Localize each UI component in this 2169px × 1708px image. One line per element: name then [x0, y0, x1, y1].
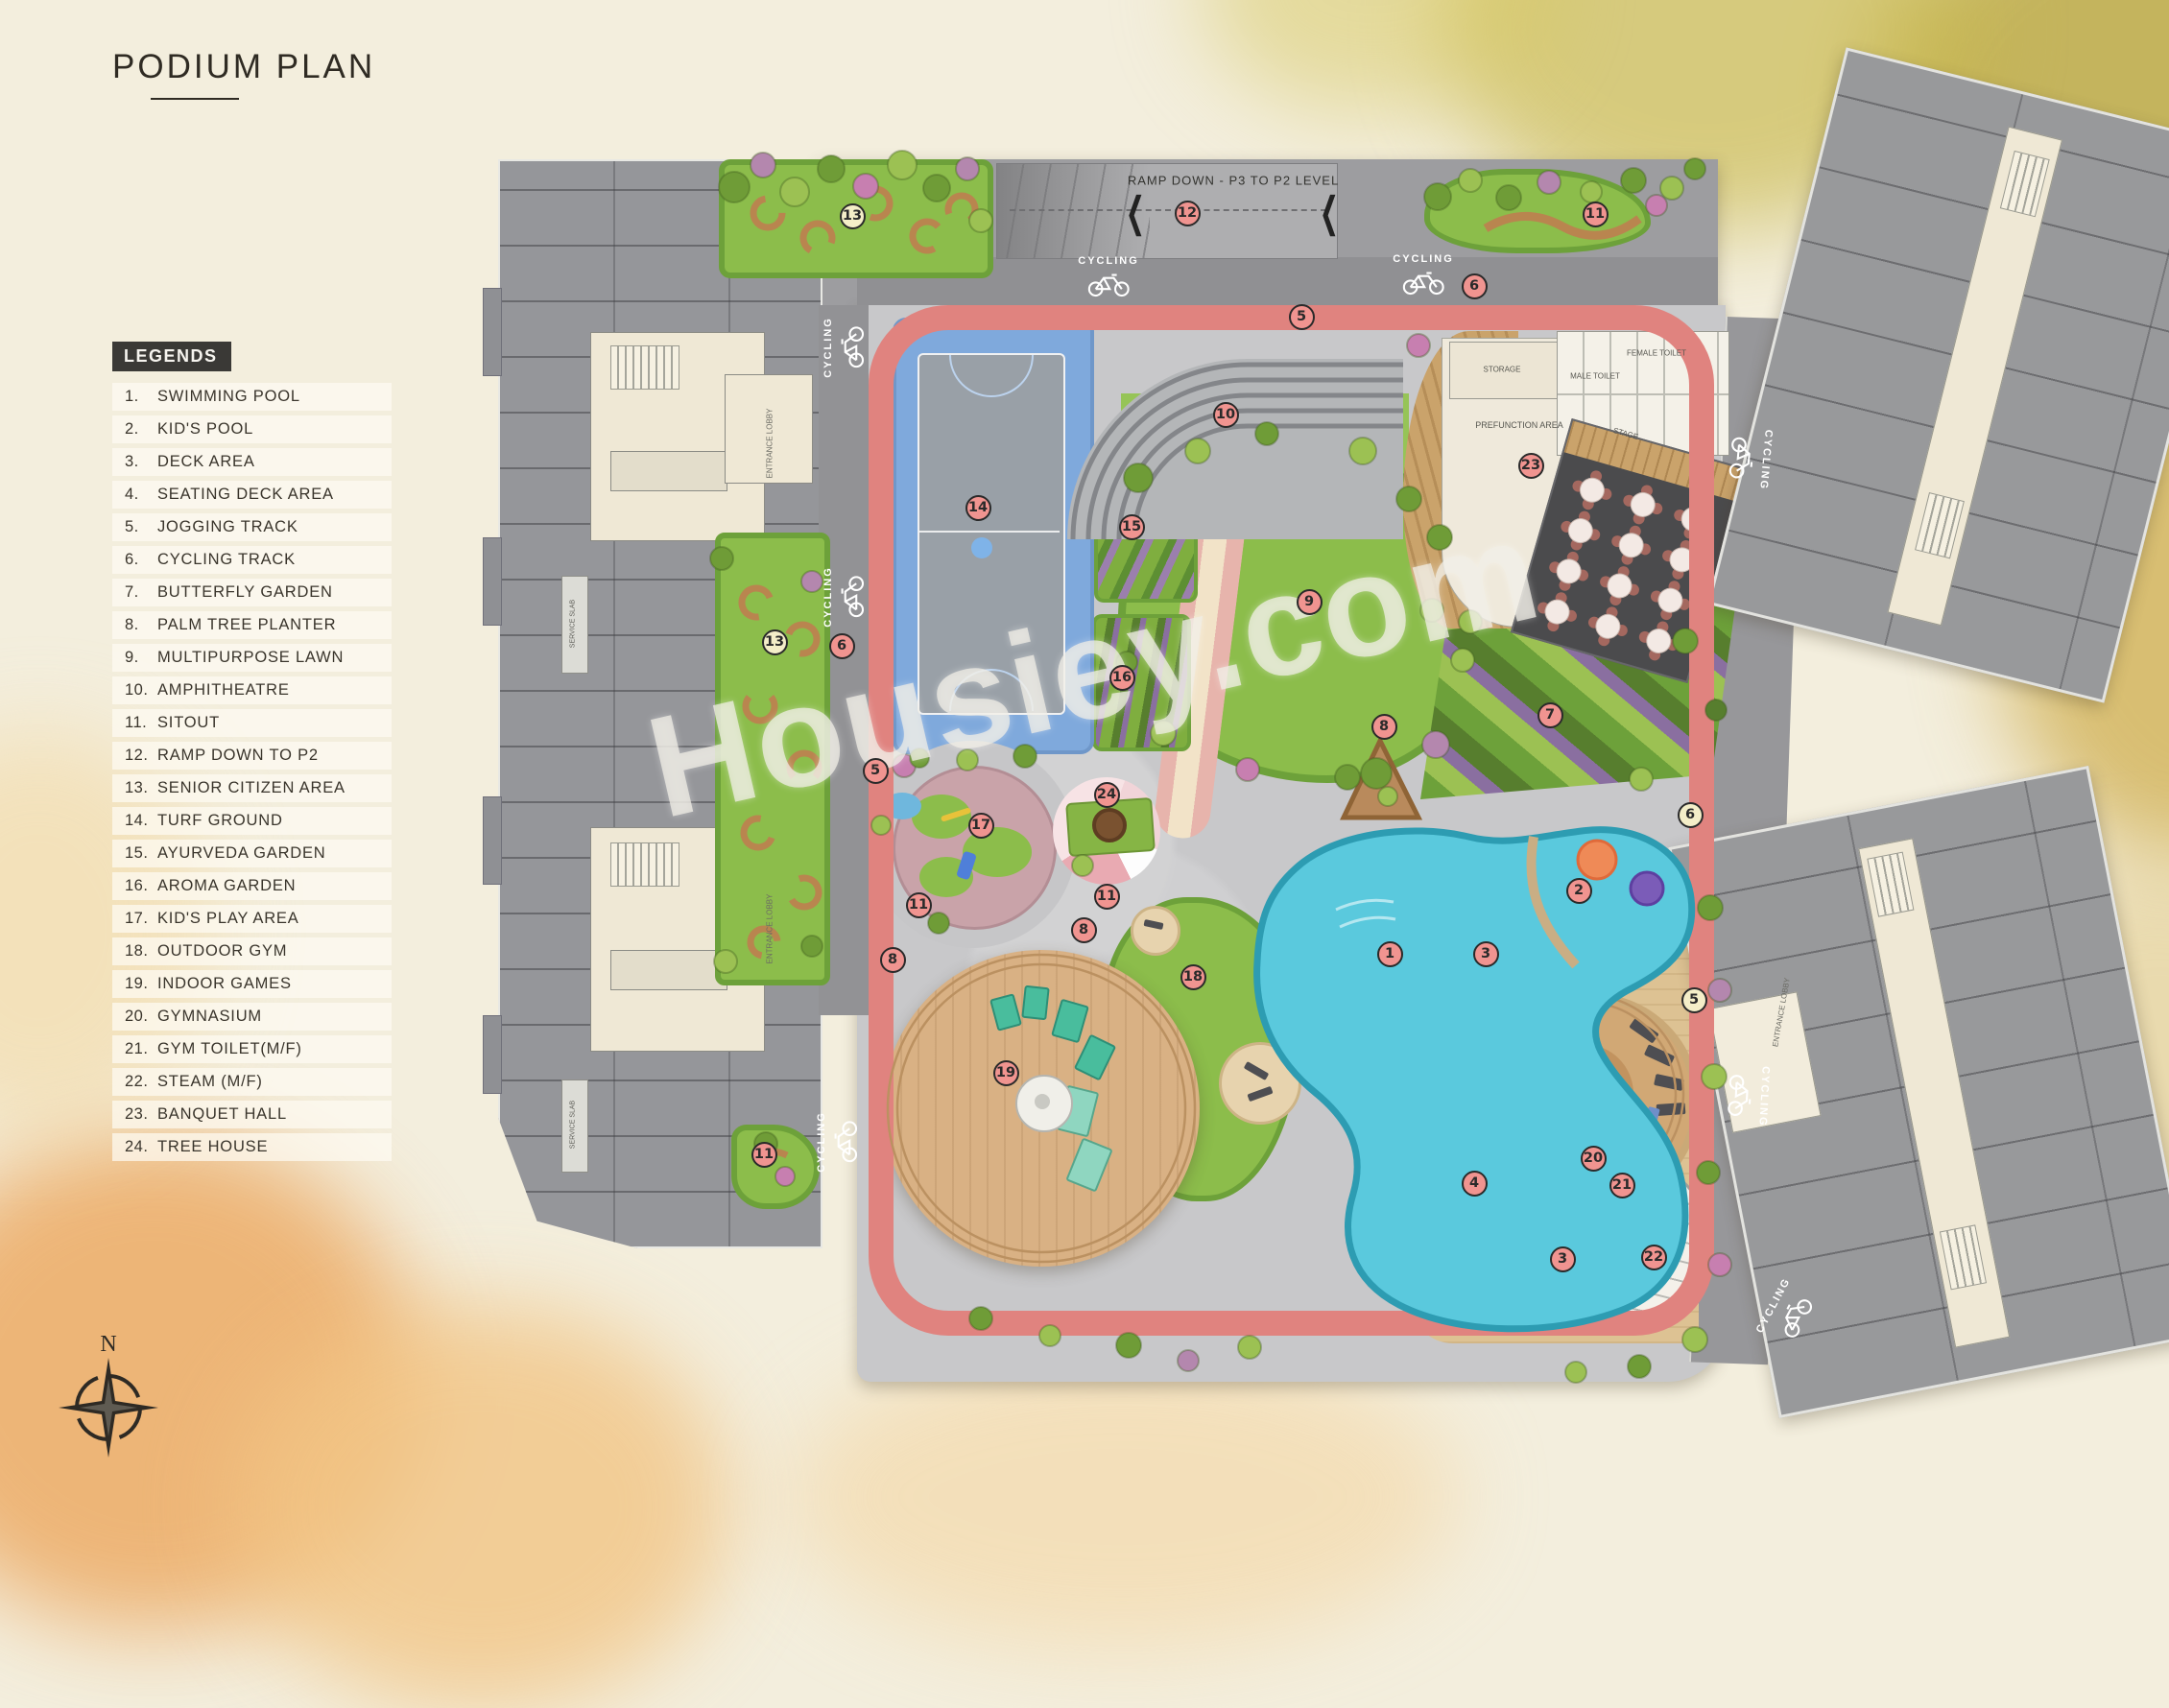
amenity-marker-5: 5 [1681, 987, 1707, 1013]
amenity-marker-22: 22 [1641, 1245, 1667, 1270]
amenity-marker-11: 11 [751, 1142, 777, 1168]
label-text: ENTRANCE LOBBY [766, 409, 775, 479]
amenity-marker-13: 13 [762, 629, 788, 655]
cycling-track-label: CYCLING [816, 1111, 858, 1173]
bicycle-icon [1728, 435, 1758, 481]
bicycle-icon [1086, 271, 1131, 297]
label-text: SERVICE SLAB [570, 600, 577, 648]
label-text: CYCLING [822, 566, 834, 628]
plan-label: SERVICE SLAB [570, 1101, 577, 1149]
amenity-marker-10: 10 [1213, 402, 1239, 428]
bicycle-icon [838, 325, 865, 369]
amenity-marker-4: 4 [1462, 1171, 1488, 1197]
amenity-marker-11: 11 [1094, 884, 1120, 910]
amenity-marker-23: 23 [1518, 453, 1544, 479]
compass-rose-icon [59, 1358, 158, 1458]
cycling-track-label: CYCLING [822, 566, 865, 628]
amenity-marker-6: 6 [1462, 273, 1488, 299]
plan-label: ENTRANCE LOBBY [766, 409, 775, 479]
compass: N [56, 1332, 161, 1462]
bicycle-icon [1401, 269, 1445, 296]
plan-label: STORAGE [1484, 366, 1521, 374]
amenity-marker-6: 6 [1678, 802, 1704, 828]
bicycle-icon [831, 1120, 858, 1164]
bicycle-icon [1727, 1073, 1755, 1118]
cycling-track-label: CYCLING [1727, 426, 1774, 490]
amenity-marker-11: 11 [1583, 202, 1609, 227]
label-text: RAMP DOWN - P3 TO P2 LEVEL [1128, 174, 1339, 188]
amenity-marker-11: 11 [906, 892, 932, 918]
amenity-marker-1: 1 [1377, 941, 1403, 967]
amenity-marker-8: 8 [1071, 917, 1097, 943]
pool-float-purple [1631, 872, 1663, 905]
sitout-bench [1486, 216, 1639, 235]
plan-overlay [0, 0, 2169, 1489]
label-text: STORAGE [1484, 366, 1521, 374]
amenity-marker-5: 5 [863, 758, 889, 784]
cycling-track-label: CYCLING [1726, 1064, 1771, 1127]
plan-label: PREFUNCTION AREA [1475, 420, 1563, 430]
cycling-track-label: CYCLING [1078, 255, 1139, 297]
label-text: PREFUNCTION AREA [1475, 420, 1563, 430]
compass-north-label: N [56, 1332, 161, 1358]
amenity-marker-19: 19 [993, 1060, 1019, 1086]
amenity-marker-16: 16 [1109, 665, 1135, 691]
plan-label: ENTRANCE LOBBY [766, 894, 775, 964]
amenity-marker-2: 2 [1566, 878, 1592, 904]
amenity-marker-20: 20 [1581, 1146, 1607, 1172]
label-text: SERVICE SLAB [570, 1101, 577, 1149]
pool-float-orange [1578, 841, 1616, 879]
amenity-marker-24: 24 [1094, 782, 1120, 808]
label-text: MALE TOILET [1570, 372, 1620, 381]
label-text: CYCLING [1393, 253, 1454, 265]
amenity-marker-9: 9 [1297, 589, 1323, 615]
plan-label: RAMP DOWN - P3 TO P2 LEVEL [1128, 174, 1339, 188]
amenity-marker-12: 12 [1175, 201, 1201, 226]
amenity-marker-17: 17 [968, 813, 994, 839]
amenity-marker-15: 15 [1119, 514, 1145, 540]
plan-label: SERVICE SLAB [570, 600, 577, 648]
plan-label: MALE TOILET [1570, 372, 1620, 381]
label-text: ENTRANCE LOBBY [766, 894, 775, 964]
amenity-marker-14: 14 [965, 495, 991, 521]
amenity-marker-21: 21 [1609, 1173, 1635, 1198]
plan-label: FEMALE TOILET [1627, 349, 1686, 358]
swimming-pool [1257, 830, 1692, 1329]
amenity-marker-7: 7 [1537, 702, 1563, 728]
amenity-marker-5: 5 [1289, 304, 1315, 330]
label-text: CYCLING [822, 317, 834, 378]
amenity-marker-13: 13 [840, 203, 866, 229]
amenity-marker-6: 6 [829, 633, 855, 659]
bicycle-icon [838, 575, 865, 619]
cycling-track-label: CYCLING [1393, 253, 1454, 296]
label-text: CYCLING [816, 1111, 827, 1173]
amenity-marker-3: 3 [1550, 1246, 1576, 1272]
amenity-marker-8: 8 [880, 947, 906, 973]
label-text: FEMALE TOILET [1627, 349, 1686, 358]
amenity-marker-3: 3 [1473, 941, 1499, 967]
amenity-marker-8: 8 [1371, 714, 1397, 740]
cycling-track-label: CYCLING [822, 317, 865, 378]
amenity-marker-18: 18 [1180, 964, 1206, 990]
label-text: CYCLING [1078, 255, 1139, 267]
